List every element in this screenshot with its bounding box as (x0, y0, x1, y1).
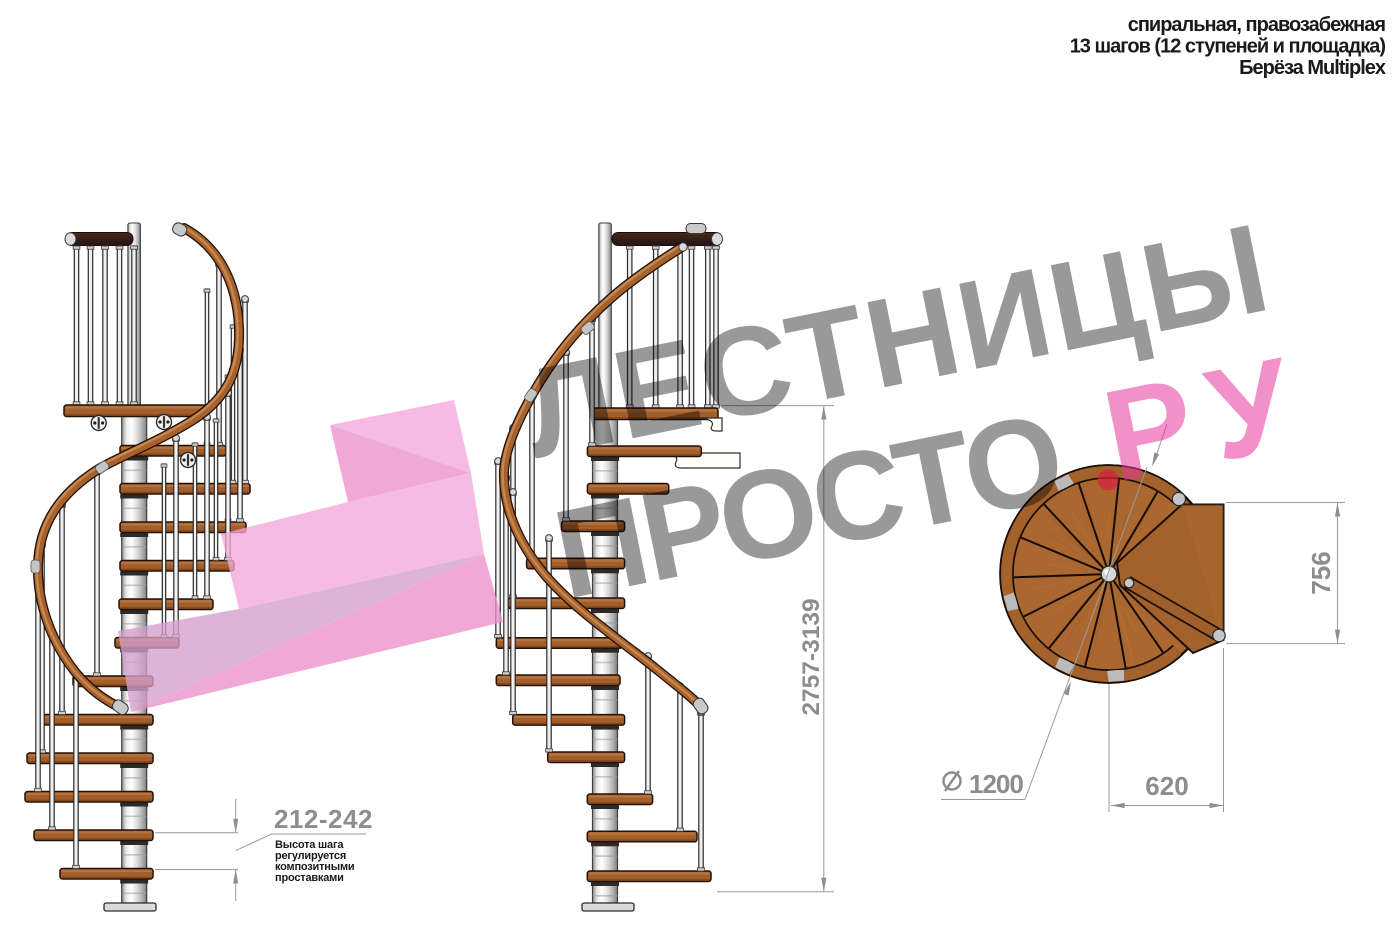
svg-text:2757-3139: 2757-3139 (798, 598, 825, 715)
svg-text:756: 756 (1306, 551, 1336, 594)
svg-text:212-242: 212-242 (274, 804, 373, 834)
svg-text:620: 620 (1145, 771, 1188, 801)
svg-text:проставками: проставками (275, 872, 344, 884)
svg-text:1200: 1200 (969, 769, 1023, 799)
svg-text:спиральная, правозабежная: спиральная, правозабежная (1128, 14, 1386, 36)
svg-text:Берёза Multiplex: Берёза Multiplex (1239, 57, 1386, 79)
svg-text:13 шагов (12 ступеней и площад: 13 шагов (12 ступеней и площадка) (1070, 36, 1386, 58)
